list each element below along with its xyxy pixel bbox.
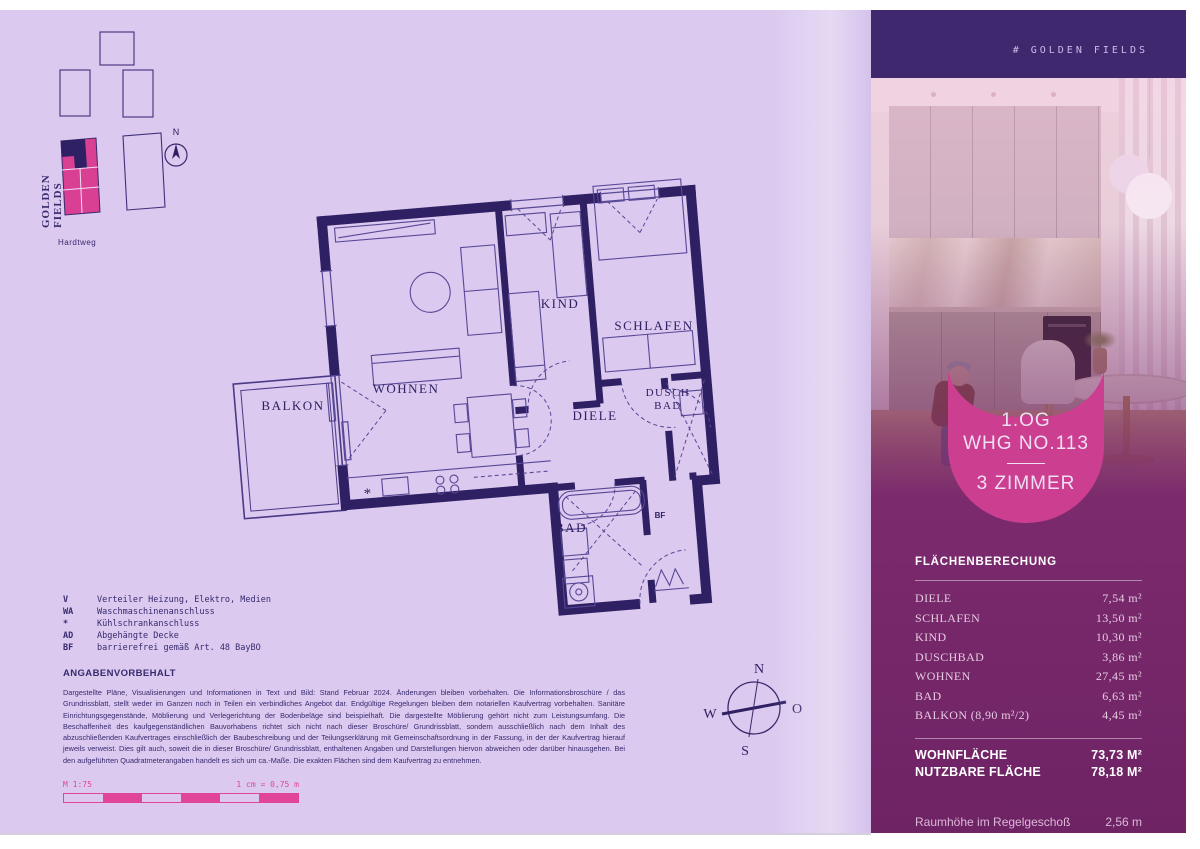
site-project-label: GOLDEN FIELDS bbox=[40, 138, 64, 228]
area-label: BALKON (8,90 m²/2) bbox=[915, 706, 1029, 726]
area-row: BALKON (8,90 m²/2)4,45 m² bbox=[915, 706, 1142, 726]
compass-n: N bbox=[754, 662, 764, 677]
photo-backsplash bbox=[889, 238, 1101, 310]
total-label: WOHNFLÄCHE bbox=[915, 747, 1007, 764]
ceiling-height-value: 2,56 m bbox=[1105, 815, 1142, 829]
bf-label: BF bbox=[655, 511, 666, 520]
area-row: WOHNEN27,45 m² bbox=[915, 667, 1142, 687]
fridge-symbol: * bbox=[363, 486, 372, 503]
room-label-balkon: BALKON bbox=[261, 398, 324, 413]
area-label: WOHNEN bbox=[915, 667, 971, 687]
site-north-label: N bbox=[173, 127, 180, 137]
floor-plan: * BALKON WOHNEN KIND SCHLAFEN DIELE DUSC… bbox=[226, 148, 738, 626]
legend-key: WA bbox=[63, 606, 97, 618]
room-label-wohnen: WOHNEN bbox=[373, 381, 440, 396]
unit-floor: 1.OG bbox=[946, 409, 1106, 432]
legend-row: ADAbgehängte Decke bbox=[63, 630, 271, 642]
compass-w: W bbox=[703, 707, 717, 722]
area-label: KIND bbox=[915, 628, 947, 648]
legend-label: Kühlschrankanschluss bbox=[97, 618, 199, 630]
photo-upper-cabinets bbox=[889, 106, 1101, 241]
scale-bar: M 1:75 1 cm = 0,75 m bbox=[63, 780, 299, 803]
disclaimer-title: ANGABENVORBEHALT bbox=[63, 668, 625, 679]
unit-badge-text: 1.OG WHG NO.113 3 ZIMMER bbox=[946, 409, 1106, 495]
scale-segment bbox=[181, 794, 220, 802]
area-value: 6,63 m² bbox=[1102, 687, 1142, 707]
plan-legend: VVerteiler Heizung, Elektro, Medien WAWa… bbox=[63, 594, 271, 654]
page-fold bbox=[771, 10, 871, 833]
area-value: 13,50 m² bbox=[1096, 609, 1142, 629]
room-label-dusch-bad: BAD bbox=[654, 400, 682, 412]
area-value: 10,30 m² bbox=[1096, 628, 1142, 648]
room-label-kind: KIND bbox=[541, 296, 580, 311]
legend-key: * bbox=[63, 618, 97, 630]
legend-label: barrierefrei gemäß Art. 48 BayBO bbox=[97, 642, 261, 654]
area-row: DUSCHBAD3,86 m² bbox=[915, 648, 1142, 668]
downlight-icon bbox=[931, 92, 936, 97]
brochure-spread: N GOLDEN FIELDS Hardtweg bbox=[0, 10, 1186, 833]
scale-bar-graphic bbox=[63, 793, 299, 803]
area-value: 4,45 m² bbox=[1102, 706, 1142, 726]
area-value: 7,54 m² bbox=[1102, 589, 1142, 609]
legend-row: VVerteiler Heizung, Elektro, Medien bbox=[63, 594, 271, 606]
area-table-title: FLÄCHENBERECHUNG bbox=[915, 556, 1142, 568]
room-label-diele: DIELE bbox=[572, 408, 617, 423]
area-row: DIELE7,54 m² bbox=[915, 589, 1142, 609]
legend-label: Verteiler Heizung, Elektro, Medien bbox=[97, 594, 271, 606]
legend-row: WAWaschmaschinenanschluss bbox=[63, 606, 271, 618]
total-row: NUTZBARE FLÄCHE78,18 M² bbox=[915, 764, 1142, 781]
legend-label: Abgehängte Decke bbox=[97, 630, 179, 642]
legend-label: Waschmaschinenanschluss bbox=[97, 606, 215, 618]
unit-number: WHG NO.113 bbox=[946, 432, 1106, 455]
floorplan-page: N GOLDEN FIELDS Hardtweg bbox=[0, 10, 871, 833]
area-row: BAD6,63 m² bbox=[915, 687, 1142, 707]
total-value: 73,73 M² bbox=[1091, 747, 1142, 764]
area-value: 3,86 m² bbox=[1102, 648, 1142, 668]
divider bbox=[915, 738, 1142, 739]
site-building bbox=[60, 70, 90, 116]
badge-divider bbox=[1007, 463, 1045, 464]
room-label-schlafen: SCHLAFEN bbox=[614, 318, 693, 333]
downlight-icon bbox=[991, 92, 996, 97]
divider bbox=[915, 580, 1142, 581]
total-value: 78,18 M² bbox=[1091, 764, 1142, 781]
north-needle-icon bbox=[172, 144, 180, 159]
legend-row: BFbarrierefrei gemäß Art. 48 BayBO bbox=[63, 642, 271, 654]
scale-segment bbox=[64, 794, 103, 802]
photo-countertop bbox=[889, 307, 1101, 312]
area-label: DUSCHBAD bbox=[915, 648, 984, 668]
downlight-icon bbox=[1051, 92, 1056, 97]
photo-pendant-lamp bbox=[1109, 154, 1149, 194]
area-label: BAD bbox=[915, 687, 942, 707]
room-label-bad: BAD bbox=[555, 520, 587, 535]
ceiling-height-row: Raumhöhe im Regelgeschoß2,56 m bbox=[915, 815, 1142, 829]
photo-window bbox=[1119, 78, 1186, 414]
legend-key: BF bbox=[63, 642, 97, 654]
total-row: WOHNFLÄCHE73,73 M² bbox=[915, 747, 1142, 764]
disclaimer: ANGABENVORBEHALT Dargestellte Pläne, Vis… bbox=[63, 668, 625, 766]
site-building bbox=[100, 32, 134, 65]
site-building bbox=[123, 133, 165, 210]
photo-plant bbox=[1083, 330, 1117, 350]
ceiling-height-label: Raumhöhe im Regelgeschoß bbox=[915, 815, 1070, 829]
unit-rooms: 3 ZIMMER bbox=[946, 472, 1106, 495]
scale-segment bbox=[142, 794, 181, 802]
legend-key: V bbox=[63, 594, 97, 606]
room-label-dusch: DUSCH bbox=[646, 387, 691, 399]
area-value: 27,45 m² bbox=[1096, 667, 1142, 687]
scale-segment bbox=[103, 794, 142, 802]
photo-table-stem bbox=[1123, 396, 1130, 458]
legend-key: AD bbox=[63, 630, 97, 642]
photo-lamp-cord bbox=[1149, 78, 1150, 158]
scale-segment bbox=[220, 794, 259, 802]
area-calculation: FLÄCHENBERECHUNG DIELE7,54 m² SCHLAFEN13… bbox=[915, 556, 1142, 829]
area-row: KIND10,30 m² bbox=[915, 628, 1142, 648]
area-label: DIELE bbox=[915, 589, 952, 609]
area-row: SCHLAFEN13,50 m² bbox=[915, 609, 1142, 629]
legend-row: *Kühlschrankanschluss bbox=[63, 618, 271, 630]
compass-s: S bbox=[741, 744, 749, 759]
info-panel: # GOLDEN FIELDS bbox=[871, 10, 1186, 833]
scale-ratio: M 1:75 bbox=[63, 780, 92, 789]
site-compass: N bbox=[165, 127, 187, 166]
total-label: NUTZBARE FLÄCHE bbox=[915, 764, 1041, 781]
scale-equivalence: 1 cm = 0,75 m bbox=[236, 780, 299, 789]
site-building bbox=[123, 70, 153, 117]
inner-walls bbox=[498, 190, 724, 613]
photo-ceiling bbox=[871, 78, 1186, 112]
scale-segment bbox=[259, 794, 298, 802]
brand-label: # GOLDEN FIELDS bbox=[1013, 45, 1148, 56]
street-label: Hardtweg bbox=[58, 238, 96, 247]
photo-pendant-lamp bbox=[1126, 173, 1172, 219]
photo-table-base bbox=[1099, 454, 1155, 465]
area-label: SCHLAFEN bbox=[915, 609, 980, 629]
disclaimer-body: Dargestellte Pläne, Visualisierungen und… bbox=[63, 687, 625, 766]
panel-header: # GOLDEN FIELDS bbox=[871, 10, 1186, 78]
unit-badge: 1.OG WHG NO.113 3 ZIMMER bbox=[946, 365, 1106, 525]
